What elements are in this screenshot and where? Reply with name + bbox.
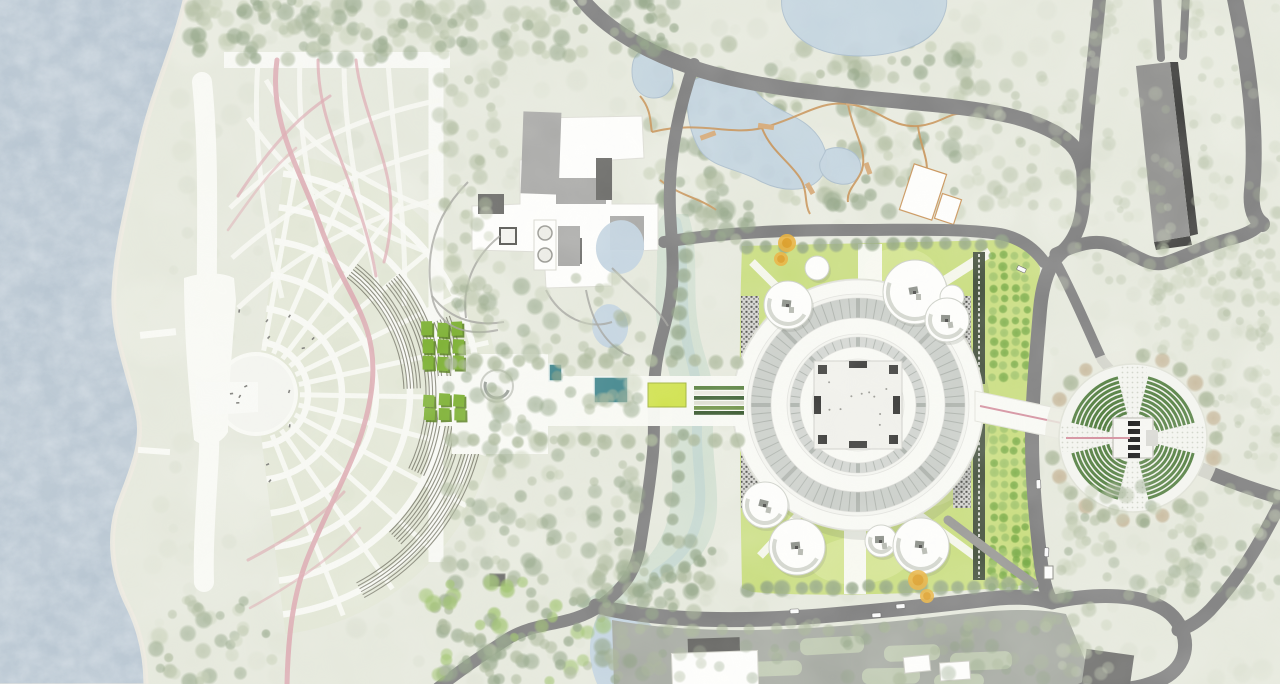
paper-texture-overlay <box>0 0 1280 684</box>
site-plan-map <box>0 0 1280 684</box>
masterplan-svg <box>0 0 1280 684</box>
overlay <box>0 0 1280 684</box>
